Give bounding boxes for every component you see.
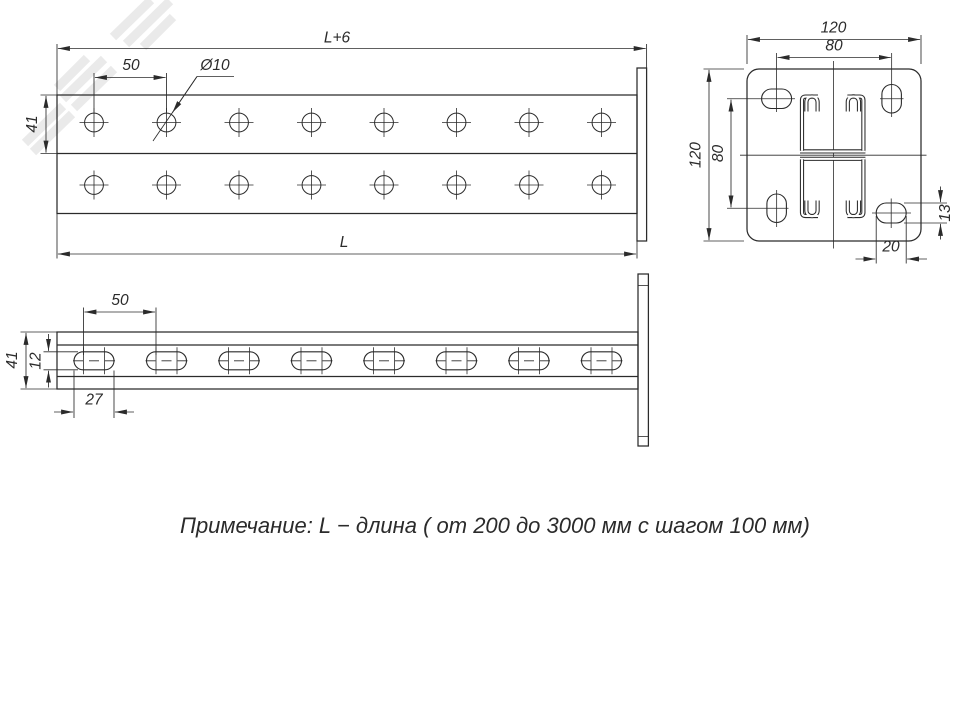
end-view: 120 80 120 80 13 20 (688, 20, 955, 264)
dim-end-hole-spacing-vertical: 80 (710, 145, 727, 163)
dim-front-overall-length: L+6 (324, 30, 351, 47)
dim-side-height: 41 (4, 351, 21, 368)
strut-profile-section (800, 96, 865, 216)
dim-front-length: L (340, 234, 349, 251)
strut-body-side (57, 332, 638, 389)
side-view: 50 41 12 27 (4, 274, 648, 446)
dim-end-slot-width: 20 (881, 239, 900, 256)
dim-side-slot-pitch: 50 (111, 292, 129, 309)
dim-side-slot-width: 12 (28, 352, 45, 370)
dim-end-hole-spacing-horizontal: 80 (825, 38, 843, 55)
technical-drawing-canvas: L+6 L 50 Ø10 41 (0, 0, 960, 720)
dim-end-plate-height: 120 (688, 142, 705, 168)
slot-row (73, 347, 623, 374)
dim-front-hole-pitch: 50 (122, 57, 140, 74)
end-plate-edge-front (637, 68, 647, 241)
end-plate-edge-side (638, 274, 648, 446)
dim-front-flange-width: 41 (24, 115, 41, 132)
dim-front-hole-diameter: Ø10 (199, 57, 230, 74)
dim-side-slot-length: 27 (84, 392, 104, 409)
watermark (25, 0, 173, 152)
note: Примечание: L − длина ( от 200 до 3000 м… (180, 513, 810, 538)
strut-body-front (57, 95, 637, 214)
front-view: L+6 L 50 Ø10 41 (24, 30, 647, 259)
dim-end-slot-height: 13 (937, 204, 954, 222)
dim-end-plate-width: 120 (821, 20, 847, 37)
